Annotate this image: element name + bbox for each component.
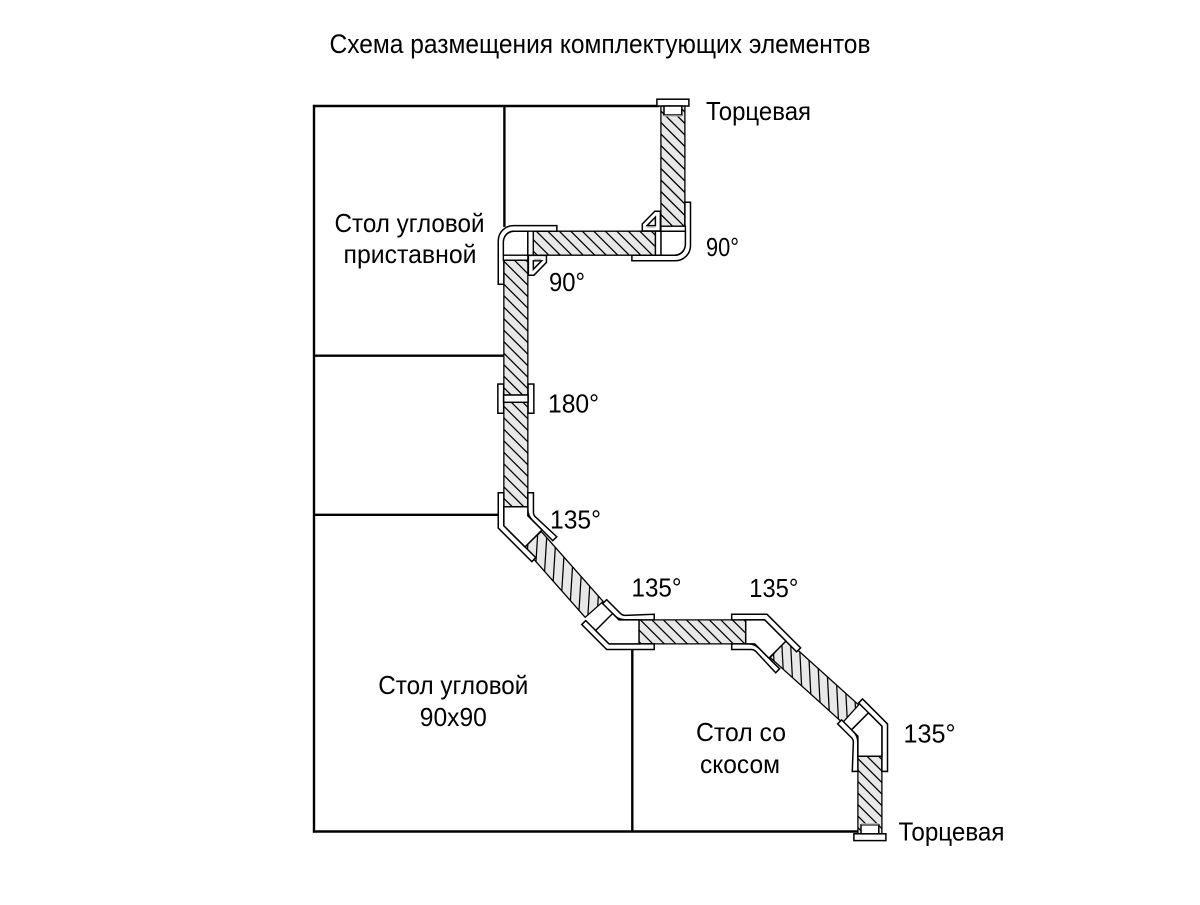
svg-text:Стол угловой: Стол угловой [335, 208, 485, 238]
svg-text:приставной: приставной [344, 239, 477, 269]
svg-text:180°: 180° [548, 389, 599, 419]
svg-text:Торцевая: Торцевая [899, 817, 1005, 847]
svg-text:Стол угловой: Стол угловой [378, 670, 528, 700]
svg-text:135°: 135° [632, 573, 682, 603]
svg-text:135°: 135° [550, 505, 601, 535]
svg-text:Торцевая: Торцевая [706, 96, 811, 126]
svg-text:135°: 135° [904, 719, 956, 749]
svg-text:скосом: скосом [700, 749, 780, 779]
svg-text:135°: 135° [749, 573, 798, 603]
svg-text:Стол со: Стол со [696, 717, 786, 747]
svg-text:90°: 90° [549, 267, 585, 297]
svg-text:90°: 90° [706, 232, 739, 262]
svg-text:Схема размещения комплектующих: Схема размещения комплектующих элементов [330, 29, 871, 59]
svg-text:90х90: 90х90 [420, 702, 487, 732]
